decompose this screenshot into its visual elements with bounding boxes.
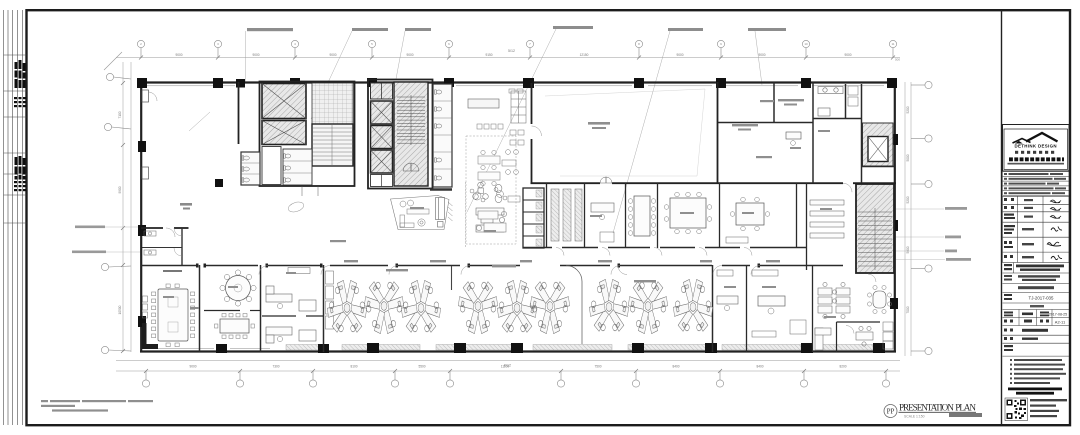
svg-text:7100: 7100 xyxy=(118,111,122,118)
svg-text:9000: 9000 xyxy=(175,53,182,57)
svg-text:9000: 9000 xyxy=(676,53,683,57)
svg-text:9000: 9000 xyxy=(329,53,336,57)
svg-text:10500: 10500 xyxy=(118,305,122,314)
svg-text:8400: 8400 xyxy=(756,365,763,369)
svg-text:9000: 9000 xyxy=(758,53,765,57)
svg-text:DETHINK DESIGN: DETHINK DESIGN xyxy=(1015,144,1057,149)
svg-text:6/12: 6/12 xyxy=(504,364,511,368)
svg-text:9900: 9900 xyxy=(118,186,122,193)
svg-text:2017-08-25: 2017-08-25 xyxy=(1049,313,1067,317)
svg-text:TJ-2017-035: TJ-2017-035 xyxy=(1029,296,1054,301)
svg-text:500: 500 xyxy=(895,58,900,62)
svg-text:8100: 8100 xyxy=(350,365,357,369)
svg-text:PP: PP xyxy=(887,408,895,416)
svg-text:SCALE 1:150: SCALE 1:150 xyxy=(904,415,925,419)
svg-text:8200: 8200 xyxy=(839,365,846,369)
svg-text:A2-11: A2-11 xyxy=(1055,320,1066,325)
svg-text:12150: 12150 xyxy=(580,53,589,57)
svg-text:7500: 7500 xyxy=(594,365,601,369)
svg-text:9000: 9000 xyxy=(189,365,196,369)
svg-text:9000: 9000 xyxy=(844,53,851,57)
svg-text:5200: 5200 xyxy=(906,106,910,113)
svg-text:7000: 7000 xyxy=(906,306,910,313)
svg-text:5000: 5000 xyxy=(906,154,910,161)
svg-text:5/12: 5/12 xyxy=(508,49,515,53)
svg-text:9000: 9000 xyxy=(406,53,413,57)
svg-text:9000: 9000 xyxy=(252,53,259,57)
svg-text:7300: 7300 xyxy=(272,365,279,369)
svg-text:5200: 5200 xyxy=(906,196,910,203)
svg-text:11: 11 xyxy=(891,42,894,46)
svg-text:5500: 5500 xyxy=(418,365,425,369)
svg-text:PRESENTATION PLAN: PRESENTATION PLAN xyxy=(899,403,976,413)
svg-text:9150: 9150 xyxy=(485,53,492,57)
svg-text:8400: 8400 xyxy=(672,365,679,369)
svg-text:10: 10 xyxy=(804,42,808,46)
svg-text:5800: 5800 xyxy=(906,246,910,253)
